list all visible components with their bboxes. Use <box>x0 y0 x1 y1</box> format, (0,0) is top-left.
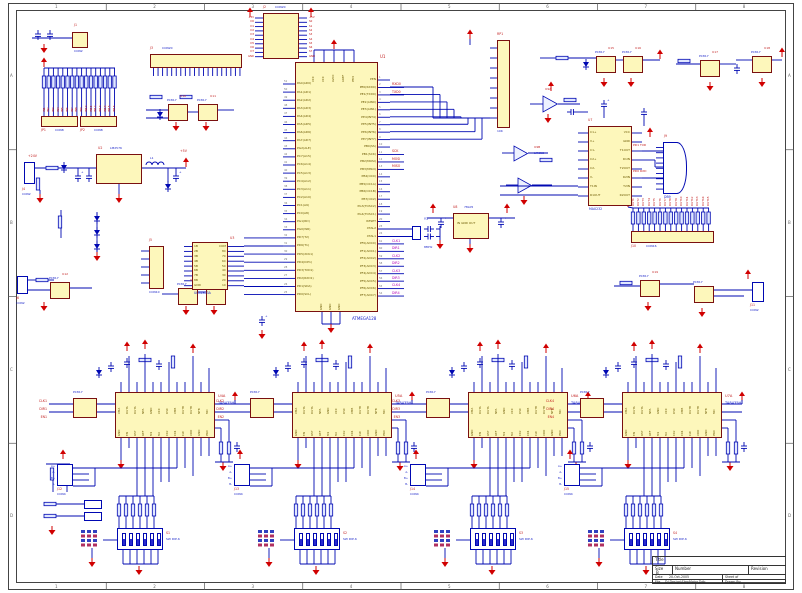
dip-slot[interactable] <box>657 533 661 546</box>
label: C1- <box>590 149 595 152</box>
pin-number: 32 <box>284 234 287 237</box>
pin-name: VCC <box>322 64 325 82</box>
pin-name: NFB <box>705 394 708 414</box>
pin-number: 10 <box>379 143 382 146</box>
connector-j3[interactable] <box>150 54 242 68</box>
net-label: B+ <box>41 477 55 480</box>
net-label: B- <box>394 483 408 486</box>
net-label: S3 <box>309 33 312 36</box>
pin-name: PE0(RXD0) <box>336 86 376 89</box>
dip-slot[interactable] <box>475 533 479 546</box>
pin-number: 14 <box>379 173 382 176</box>
opto-part: PC817 <box>49 277 59 280</box>
pin-name: PB5(OC1A) <box>336 183 376 186</box>
pin-name: RST <box>487 416 490 436</box>
label: GND <box>612 140 630 143</box>
pin-name: VMB <box>174 394 177 414</box>
driver-part: TA8435H <box>725 401 741 405</box>
connector-jp2[interactable] <box>80 116 117 127</box>
pin-name: GND <box>295 416 298 436</box>
connector-db9[interactable] <box>663 142 687 194</box>
net-label: CLK2 <box>206 400 224 404</box>
label: 3B <box>194 255 198 258</box>
net-label: IN2 <box>47 96 50 112</box>
label: LM358 <box>534 152 544 155</box>
pin-name: RESET <box>336 220 376 223</box>
net-label: OUT9 <box>675 190 678 206</box>
label: PC817 <box>250 391 260 394</box>
pin-name: GND <box>338 292 341 310</box>
pin-number: 51 <box>284 80 287 83</box>
plus-mark: + <box>504 217 507 220</box>
driver-des: U5A <box>395 394 402 398</box>
pin-number: 4 <box>379 98 381 101</box>
dip-slot[interactable] <box>299 533 303 546</box>
zone-number: 8 <box>743 5 746 9</box>
plus-mark: + <box>81 171 84 174</box>
label: C2- <box>590 167 595 170</box>
pin-name: RST <box>641 416 644 436</box>
net-label: A+ <box>41 465 55 468</box>
pin-number: 25 <box>284 291 287 294</box>
pin-name: REF <box>319 416 322 436</box>
net-label: IN8 <box>75 96 78 112</box>
pin-number: 20 <box>379 218 382 221</box>
pin-number: 16 <box>379 188 382 191</box>
net-label: OUT11 <box>686 190 689 206</box>
connector-j1[interactable] <box>72 32 88 48</box>
net-label: TXD0 <box>392 91 401 95</box>
file-value: D:\Design\StepMotor.Ddb <box>665 581 705 585</box>
dip-slot[interactable] <box>503 533 507 546</box>
pin-name: VCC <box>158 394 161 414</box>
schematic-sheet: 1122334455667788AABBCCDDJ1CON2IN1IN2IN3I… <box>0 0 802 593</box>
connector-small[interactable] <box>84 500 102 509</box>
net-label: OUT5 <box>653 190 656 206</box>
pin-name: OUTA <box>126 394 129 414</box>
optocoupler[interactable] <box>640 280 660 297</box>
pin-number: 37 <box>284 193 287 196</box>
net-label: +24V <box>28 155 37 159</box>
optocoupler[interactable] <box>50 282 70 299</box>
net-label: OUT8 <box>669 190 672 206</box>
pin-name: NFA <box>649 394 652 414</box>
zone-letter: D <box>10 514 13 518</box>
pin-name: M2 <box>511 416 514 436</box>
dip-slot[interactable] <box>150 533 154 546</box>
label: 1C <box>214 284 226 287</box>
pin-name: PD6(T1) <box>297 244 309 247</box>
net-label: S6 <box>309 46 312 49</box>
optocoupler[interactable] <box>752 56 772 73</box>
pin-number: 11 <box>379 151 382 154</box>
pin-name: PF4(ADC4) <box>336 272 376 275</box>
pin-name: OSC <box>166 394 169 414</box>
net-label: D2 <box>236 29 254 32</box>
net-label: A- <box>394 471 408 474</box>
pin-name: PD7(T2) <box>297 236 309 239</box>
dip-switch[interactable] <box>117 528 163 550</box>
driver-des: U7A <box>725 394 732 398</box>
opto-part: PC817 <box>693 281 703 284</box>
connector-j4[interactable] <box>24 162 35 184</box>
zone-number: 3 <box>252 5 255 9</box>
label: CON20 <box>162 47 173 50</box>
pin-name: VMB <box>681 394 684 414</box>
pin-name: PE3(AIN1) <box>336 108 376 111</box>
zone-number: 2 <box>153 5 156 9</box>
network-rp1[interactable] <box>497 40 510 128</box>
net-label: CLK2 <box>392 255 400 259</box>
dip-des: S3 <box>519 532 523 536</box>
pin-number: 36 <box>284 202 287 205</box>
pin-name: PC3(A11) <box>297 188 311 191</box>
pin-name: NFB <box>375 394 378 414</box>
pin-name: PC5(A13) <box>297 172 311 175</box>
connector-isp[interactable] <box>149 246 164 289</box>
dip-slot[interactable] <box>636 533 640 546</box>
label: U2 <box>98 147 102 151</box>
net-label: D0 <box>236 20 254 23</box>
net-label: CLK3 <box>392 270 400 274</box>
pin-name: PD0(SCL) <box>297 293 311 296</box>
opto-part: PC817 <box>751 51 761 54</box>
driver-conn[interactable] <box>410 464 426 486</box>
net-label: DIR3 <box>382 408 400 412</box>
net-label: OUT12 <box>691 190 694 206</box>
dip-slot[interactable] <box>629 533 633 546</box>
dip-slot[interactable] <box>157 533 161 546</box>
dip-slot[interactable] <box>122 533 126 546</box>
pin-name: OUTA <box>134 394 137 414</box>
pin-name: CK1 <box>174 416 177 436</box>
pin-name: VMA <box>471 394 474 414</box>
net-label: RXD0 <box>392 83 401 87</box>
net-label: B- <box>218 483 232 486</box>
net-label: EN1 <box>29 416 47 420</box>
dip-slot[interactable] <box>320 533 324 546</box>
label: CON2 <box>74 50 83 53</box>
label: JP2 <box>80 129 85 133</box>
pin-number: 58 <box>379 262 382 265</box>
optocoupler[interactable] <box>700 60 720 77</box>
net-label: D1 <box>236 25 254 28</box>
pin-name: OUTB <box>697 394 700 414</box>
pin-name: PRO <box>559 416 562 436</box>
dip-slot[interactable] <box>482 533 486 546</box>
pin-number: 35 <box>284 210 287 213</box>
net-label: B+ <box>548 477 562 480</box>
net-label: OUT1 <box>632 190 635 206</box>
label: CON4 <box>564 493 573 496</box>
pin-name: OUTA <box>311 394 314 414</box>
pin-name: GND <box>503 394 506 414</box>
optocoupler[interactable] <box>694 286 714 303</box>
pin-number: 47 <box>284 112 287 115</box>
pin-name: PA0(AD0) <box>297 82 311 85</box>
driver-opto[interactable] <box>426 398 450 418</box>
dip-slot[interactable] <box>313 533 317 546</box>
label: 6C <box>214 260 226 263</box>
driver-conn[interactable] <box>57 464 73 486</box>
opto-des: U19 <box>652 271 658 274</box>
pin-number: 43 <box>284 145 287 148</box>
net-label: D7 <box>236 50 254 53</box>
pin-name: OUTB <box>689 394 692 414</box>
pin-name: PA2(AD2) <box>297 99 311 102</box>
net-label: +5V <box>309 16 315 19</box>
dip-slot[interactable] <box>334 533 338 546</box>
pin-number: 2 <box>379 83 381 86</box>
net-label: OUT13 <box>696 190 699 206</box>
pin-name: PG0(WR) <box>297 228 310 231</box>
connector-j10[interactable] <box>631 231 714 243</box>
pin-name: PE2(AIN0) <box>336 101 376 104</box>
zone-letter: D <box>788 514 791 518</box>
crystal-y1[interactable] <box>412 226 421 240</box>
net-label: CLK4 <box>392 284 400 288</box>
dip-slot[interactable] <box>143 533 147 546</box>
pin-name: PF6(ADC6) <box>336 287 376 290</box>
connector-small[interactable] <box>84 512 102 521</box>
pin-name: PB6(OC1B) <box>336 190 376 193</box>
connector-j6[interactable] <box>17 276 28 294</box>
label: RP1 <box>497 33 503 37</box>
net-label: OUT6 <box>659 190 662 206</box>
opto-part: PC817 <box>639 275 649 278</box>
dip-part: SW DIP-6 <box>166 538 180 541</box>
pin-name: REF <box>142 416 145 436</box>
label: R1IN <box>612 158 630 161</box>
net-label: D5 <box>236 42 254 45</box>
opto-part: PC817 <box>167 99 177 102</box>
pin-number: 19 <box>379 210 382 213</box>
label: 10K <box>497 130 503 133</box>
label: CON20 <box>275 6 286 9</box>
pin-name: PD5(XCK1) <box>297 253 313 256</box>
net-label: OUT14 <box>702 190 705 206</box>
net-label: IN10 <box>85 96 88 112</box>
pin-name: PA5(AD5) <box>297 123 311 126</box>
pin-name: PF3(ADC3) <box>336 265 376 268</box>
pin-name: VMB <box>527 394 530 414</box>
pin-number: 28 <box>284 266 287 269</box>
opto-part: PC817 <box>177 283 187 286</box>
net-label: B+ <box>218 477 232 480</box>
dip-slot[interactable] <box>496 533 500 546</box>
title-label: Title <box>655 558 664 563</box>
net-label: PD1 TXD <box>633 144 646 147</box>
pin-number: 18 <box>379 203 382 206</box>
label: V- <box>590 176 593 179</box>
regulator-lm2576[interactable] <box>96 154 142 184</box>
pin-number: 13 <box>379 165 382 168</box>
optocoupler[interactable] <box>198 104 218 121</box>
plus-mark: + <box>607 99 610 102</box>
pin-name: PB0(SS) <box>336 145 376 148</box>
zone-number: 1 <box>55 5 58 9</box>
driver-opto[interactable] <box>580 398 604 418</box>
connector-j11[interactable] <box>752 282 764 302</box>
net-label: DIR1 <box>29 408 47 412</box>
dip-switch[interactable] <box>294 528 340 550</box>
pin-number: 44 <box>284 137 287 140</box>
pin-number: 55 <box>379 285 382 288</box>
net-label: DIR3 <box>392 277 400 281</box>
pin-number: 59 <box>379 255 382 258</box>
revision-label: Revision <box>751 567 768 572</box>
net-label: S1 <box>309 25 312 28</box>
label: CON4 <box>57 493 66 496</box>
label: CON10 <box>149 291 160 294</box>
driver-opto[interactable] <box>250 398 274 418</box>
label: R2IN <box>612 176 630 179</box>
net-label: A- <box>548 471 562 474</box>
dip-slot[interactable] <box>664 533 668 546</box>
label: 8B <box>194 279 198 282</box>
label: 6B <box>194 269 198 272</box>
dip-slot[interactable] <box>643 533 647 546</box>
net-label: A- <box>218 471 232 474</box>
net-label: GND <box>236 55 254 58</box>
pin-name: PF5(ADC5) <box>336 280 376 283</box>
zone-letter: A <box>10 74 13 78</box>
pin-name: VCC <box>312 64 315 82</box>
label: J3 <box>150 47 153 51</box>
pin-name: NFB <box>198 394 201 414</box>
connector-j2[interactable] <box>263 13 299 59</box>
pin-name: GND <box>327 394 330 414</box>
pin-name: OUTA <box>487 394 490 414</box>
pin-name: OUTB <box>182 394 185 414</box>
dip-slot[interactable] <box>129 533 133 546</box>
label: T2OUT <box>612 167 630 170</box>
zone-number: 4 <box>350 585 353 589</box>
pin-name: CK2 <box>343 416 346 436</box>
regulator-78l05[interactable] <box>453 213 489 239</box>
label: R2OUT <box>612 194 630 197</box>
pin-name: PA1(AD1) <box>297 91 311 94</box>
pin-name: OUTA <box>641 394 644 414</box>
pin-number: 41 <box>284 161 287 164</box>
pin-name: PEN <box>352 64 355 82</box>
optocoupler[interactable] <box>596 56 616 73</box>
pin-number: 34 <box>284 218 287 221</box>
label: T2IN <box>612 185 630 188</box>
pin-number: 60 <box>379 247 382 250</box>
label: U9B <box>534 146 540 149</box>
dip-slot[interactable] <box>510 533 514 546</box>
pin-name: CK1 <box>527 416 530 436</box>
label: PC817 <box>73 391 83 394</box>
opto-des: U10 <box>180 95 186 98</box>
pin-name: CK2 <box>166 416 169 436</box>
pin-name: VCC <box>335 394 338 414</box>
driver-des: U4A <box>218 394 225 398</box>
driver-conn[interactable] <box>234 464 250 486</box>
optocoupler[interactable] <box>623 56 643 73</box>
pin-name: PB2(MOSI) <box>336 160 376 163</box>
opto-des: U11 <box>210 95 216 98</box>
dip-slot[interactable] <box>489 533 493 546</box>
net-label: DIR4 <box>392 292 400 296</box>
pin-name: PG4(TOSC1) <box>336 213 376 216</box>
pin-name: AVCC <box>332 64 335 82</box>
driver-conn[interactable] <box>564 464 580 486</box>
pin-name: PG3(TOSC2) <box>336 205 376 208</box>
label: PC817 <box>426 391 436 394</box>
label: 1B <box>194 245 198 248</box>
label: 8MHz <box>424 246 432 249</box>
pin-name: GND <box>329 292 332 310</box>
pin-name: PE7(INT7) <box>336 138 376 141</box>
dip-slot[interactable] <box>306 533 310 546</box>
driver-opto[interactable] <box>73 398 97 418</box>
label: J10 <box>631 245 636 249</box>
zone-number: 6 <box>546 585 549 589</box>
pin-name: OSC <box>673 394 676 414</box>
label: J2 <box>263 6 266 10</box>
pin-name: OUTB <box>367 394 370 414</box>
pin-number: 38 <box>284 185 287 188</box>
pin-name: CW <box>359 416 362 436</box>
label: CON2 <box>750 309 759 312</box>
pin-name: GND <box>657 394 660 414</box>
dip-slot[interactable] <box>136 533 140 546</box>
pin-name: M2 <box>158 416 161 436</box>
pin-name: EN <box>303 416 306 436</box>
opto-des: U18 <box>764 47 770 50</box>
pin-name: M1 <box>327 416 330 436</box>
optocoupler[interactable] <box>168 104 188 121</box>
pin-name: PD3(TXD1) <box>297 269 313 272</box>
label: L1 <box>150 157 154 160</box>
label: 4B <box>194 260 198 263</box>
pin-name: CK2 <box>519 416 522 436</box>
net-label: MISO <box>392 165 400 169</box>
zone-letter: C <box>10 368 13 372</box>
dip-slot[interactable] <box>327 533 331 546</box>
pin-name: PB3(MISO) <box>336 168 376 171</box>
label: J5 <box>149 239 152 243</box>
pin-number: 61 <box>379 240 382 243</box>
net-label: D6 <box>236 46 254 49</box>
net-label: D4 <box>236 38 254 41</box>
pin-name: PE1(TXD0) <box>336 93 376 96</box>
connector-jp1[interactable] <box>41 116 78 127</box>
dip-slot[interactable] <box>650 533 654 546</box>
pin-number: 30 <box>284 250 287 253</box>
pin-name: OUTB <box>359 394 362 414</box>
label: IN GND OUT <box>457 222 475 225</box>
net-label: D3 <box>236 33 254 36</box>
pin-number: 42 <box>284 153 287 156</box>
pin-name: PC7(A15) <box>297 155 311 158</box>
pin-name: PC2(A10) <box>297 196 311 199</box>
pin-name: PC0(A8) <box>297 212 309 215</box>
pin-name: PG2(ALE) <box>297 147 311 150</box>
dip-switch[interactable] <box>470 528 516 550</box>
dip-switch[interactable] <box>624 528 670 550</box>
label: U7 <box>588 119 592 123</box>
net-label: EN3 <box>382 416 400 420</box>
pin-name: VDD <box>190 416 193 436</box>
pin-name: RST <box>134 416 137 436</box>
net-label: IN16 <box>113 96 116 112</box>
pin-name: PA6(AD6) <box>297 131 311 134</box>
net-label: OUT7 <box>664 190 667 206</box>
label: Y1 <box>424 218 428 222</box>
